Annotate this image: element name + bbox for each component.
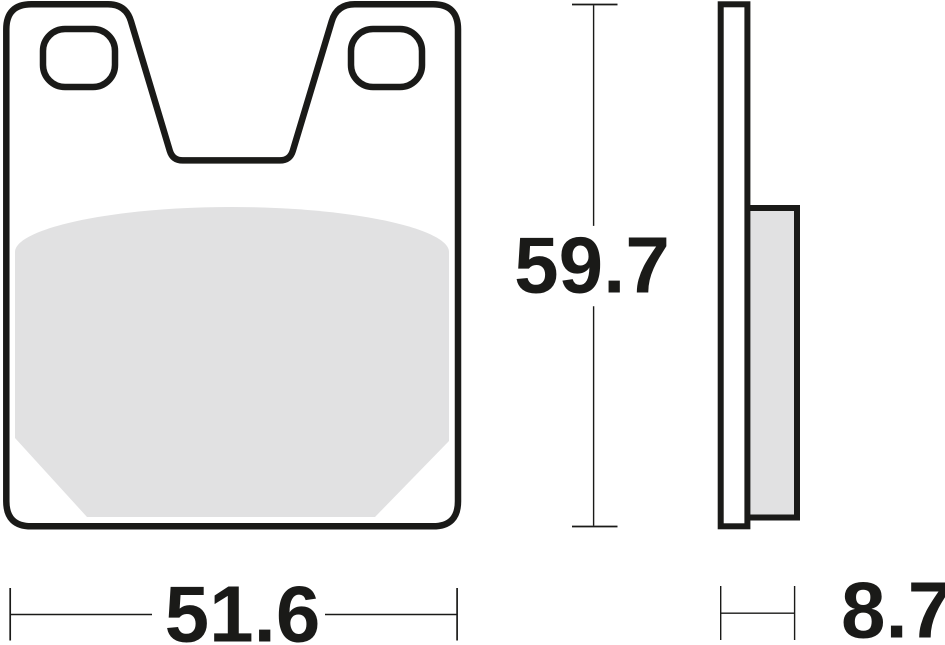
svg-text:51.6: 51.6 [165, 570, 321, 645]
svg-text:8.7: 8.7 [841, 566, 945, 645]
svg-text:59.7: 59.7 [514, 221, 670, 310]
